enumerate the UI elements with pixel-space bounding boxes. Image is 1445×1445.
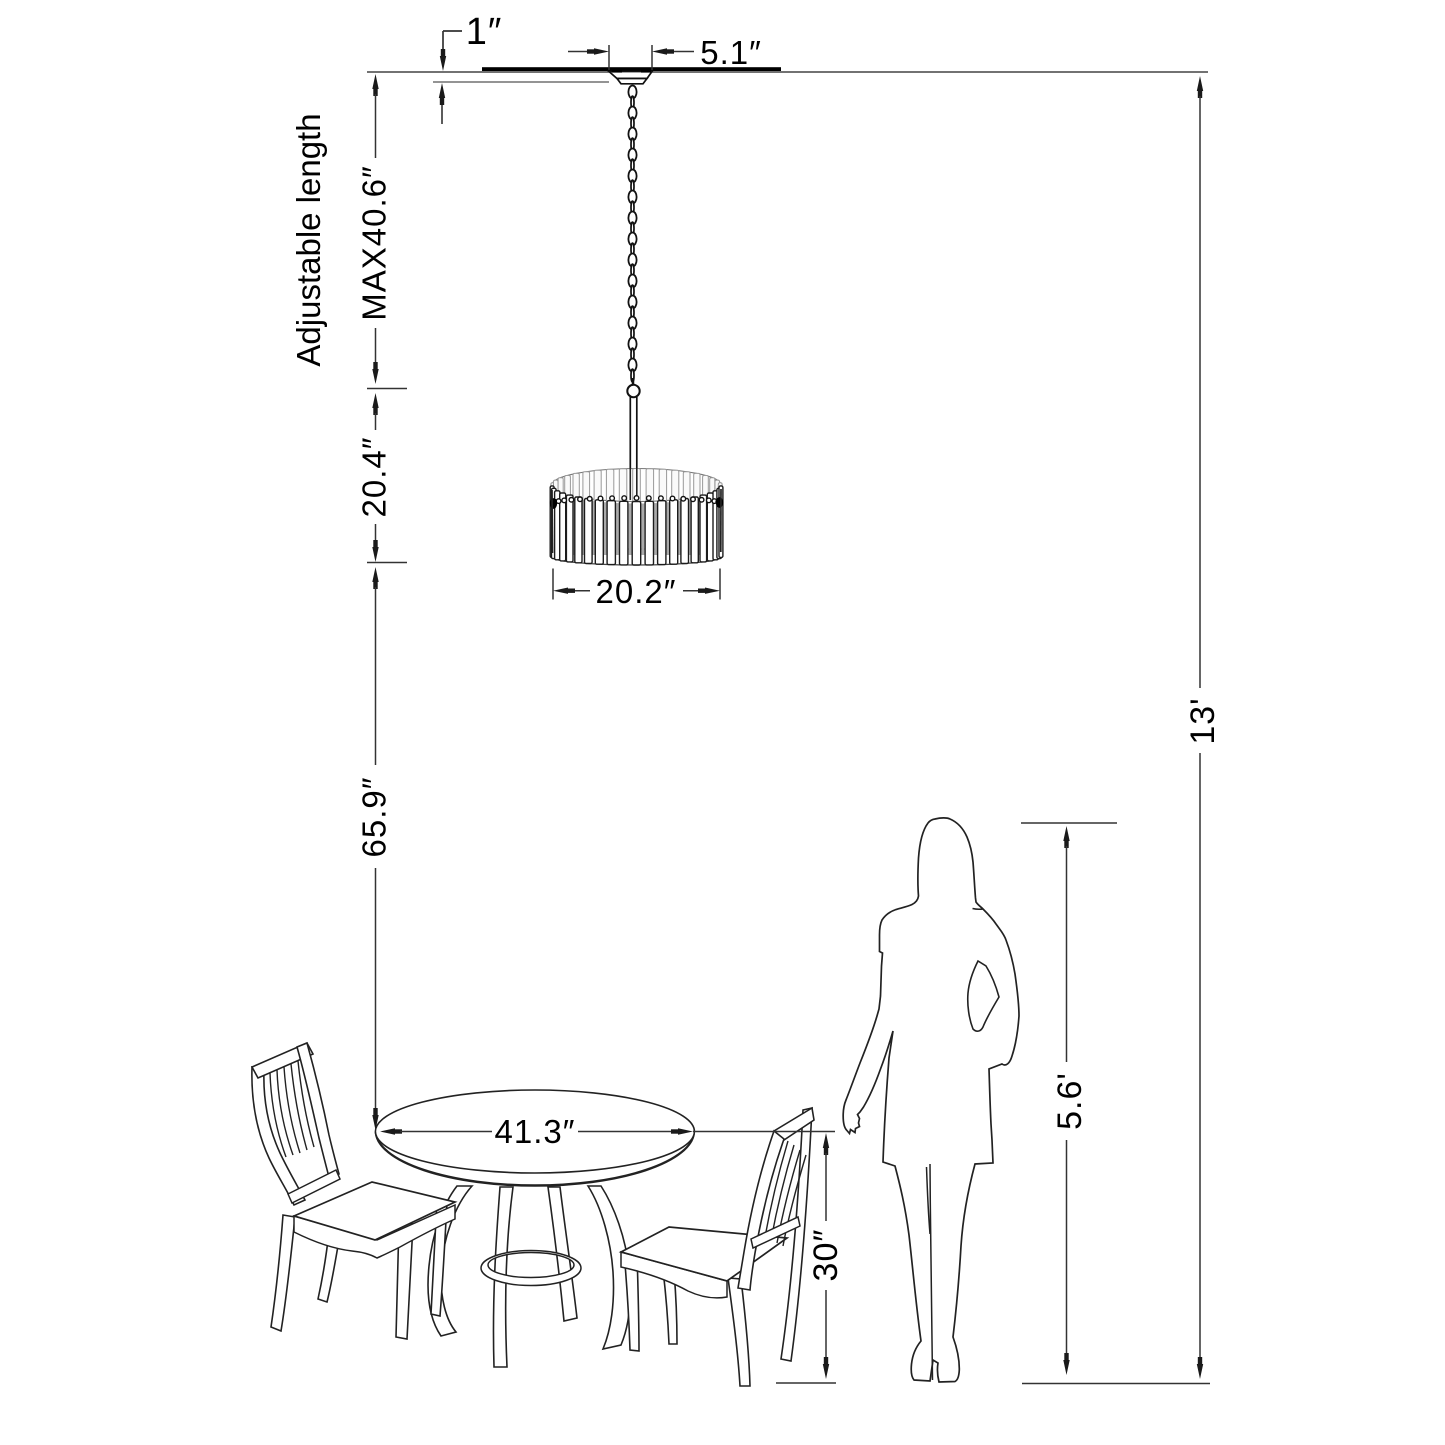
svg-text:20.4″: 20.4″: [356, 437, 393, 518]
svg-text:41.3″: 41.3″: [495, 1113, 576, 1150]
svg-text:Adjustable length: Adjustable length: [290, 113, 327, 366]
svg-text:20.2″: 20.2″: [596, 573, 677, 610]
svg-text:5.6': 5.6': [1051, 1072, 1089, 1130]
svg-text:MAX40.6″: MAX40.6″: [356, 165, 393, 320]
svg-text:65.9″: 65.9″: [356, 777, 393, 858]
svg-text:13': 13': [1184, 697, 1222, 744]
svg-text:1″: 1″: [466, 11, 503, 53]
svg-text:5.1″: 5.1″: [700, 34, 762, 71]
svg-text:30″: 30″: [807, 1229, 845, 1282]
